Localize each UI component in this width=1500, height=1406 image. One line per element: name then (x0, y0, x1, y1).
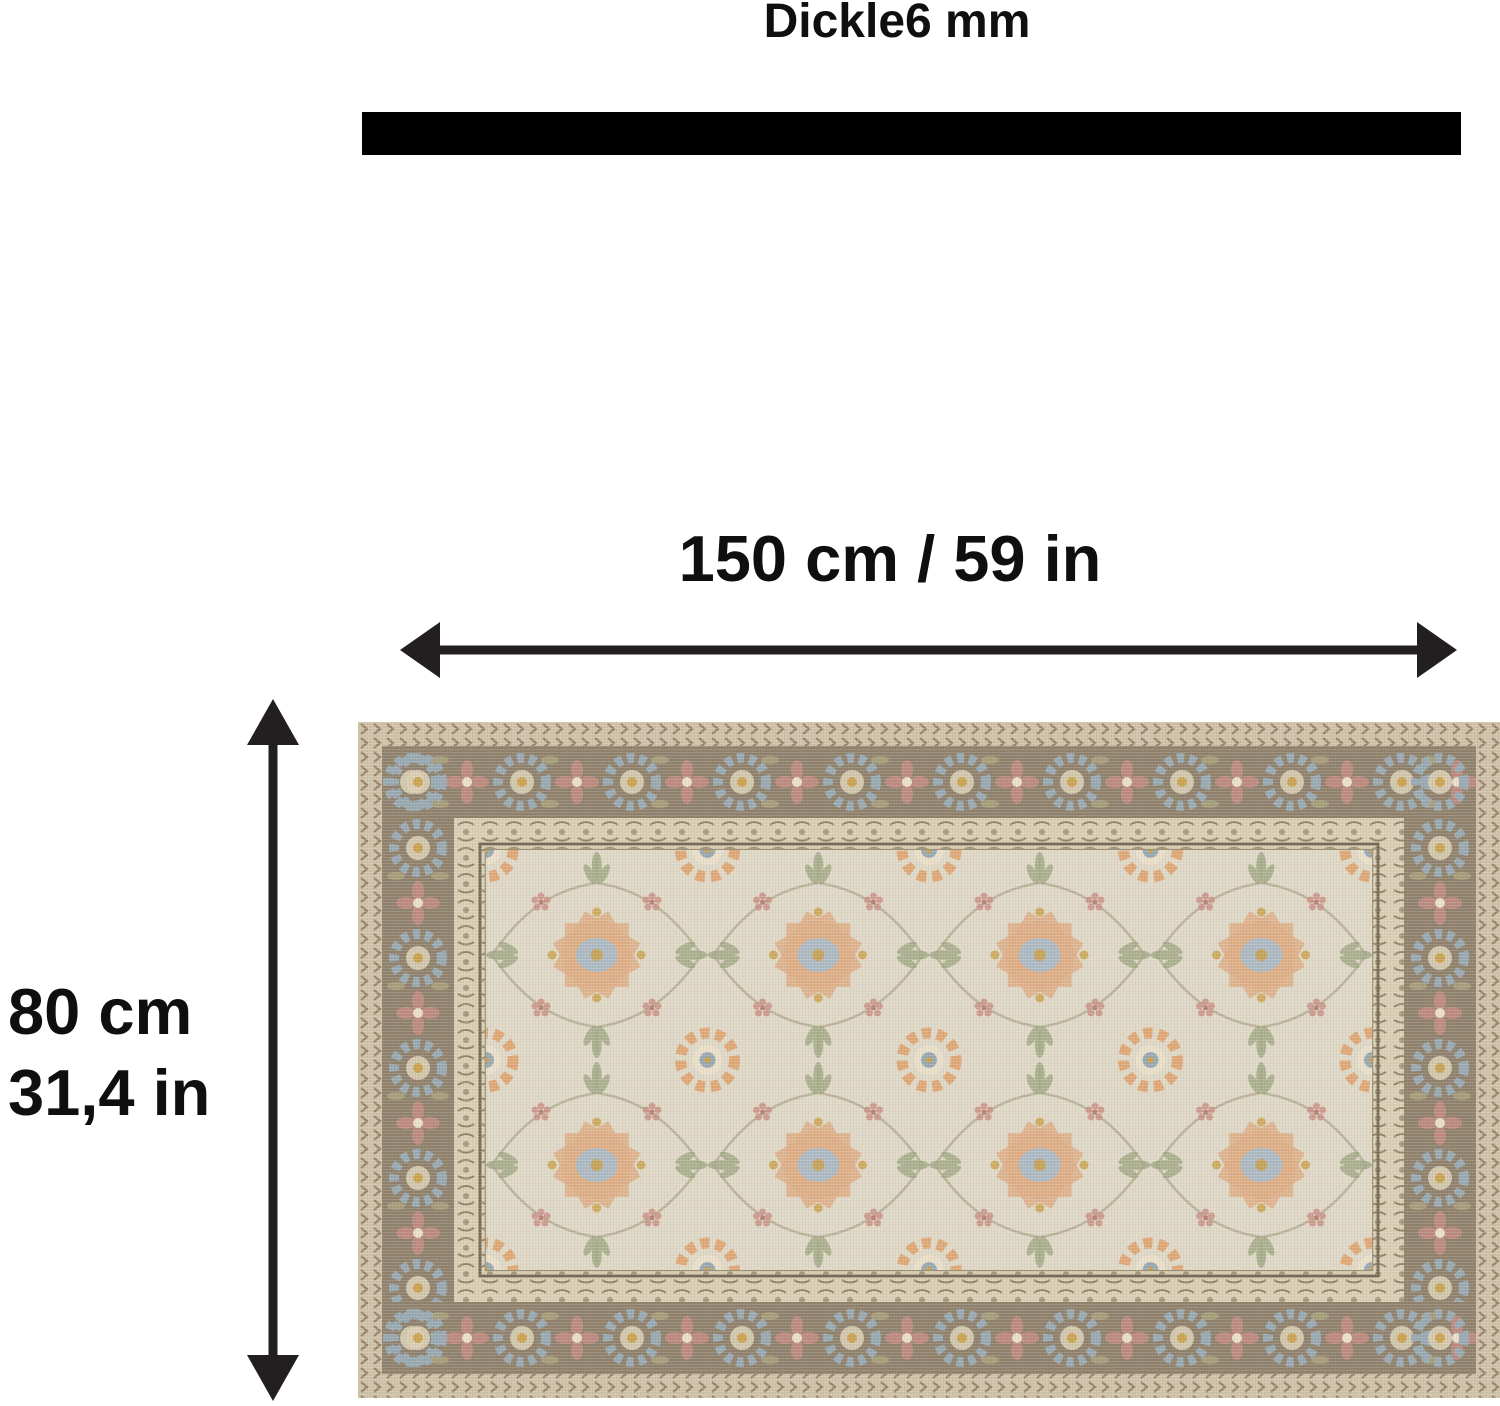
product-dimension-diagram: Dickle6 mm 150 cm / 59 in 80 cm 31,4 in (0, 0, 1500, 1406)
height-dimension-arrow-icon (245, 699, 301, 1401)
rug-image (358, 722, 1500, 1398)
width-dimension-arrow-icon (400, 620, 1457, 680)
thickness-bar (362, 112, 1461, 155)
thickness-title: Dickle6 mm (764, 0, 1031, 49)
height-dimension-label: 80 cm 31,4 in (8, 971, 210, 1133)
width-dimension-label: 150 cm / 59 in (679, 521, 1102, 596)
height-dimension-in: 31,4 in (8, 1052, 210, 1133)
height-dimension-cm: 80 cm (8, 971, 210, 1052)
